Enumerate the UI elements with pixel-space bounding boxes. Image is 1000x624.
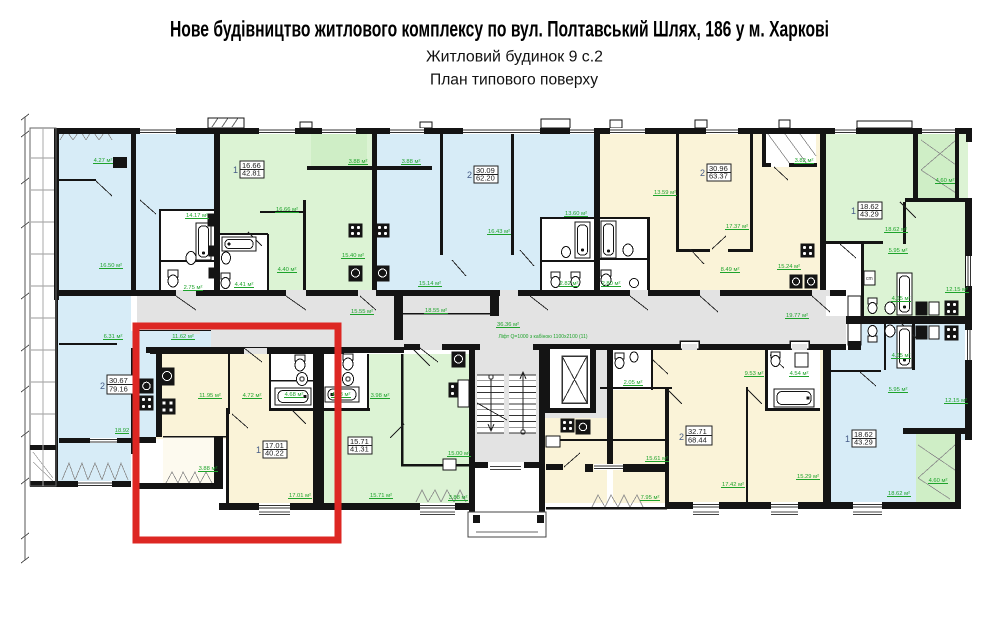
svg-text:1: 1 (233, 165, 238, 175)
svg-text:18.55 м²: 18.55 м² (425, 308, 447, 314)
svg-text:4.72 м²: 4.72 м² (243, 393, 262, 399)
svg-text:16.66 м²: 16.66 м² (276, 207, 298, 213)
svg-text:1: 1 (256, 445, 261, 455)
svg-text:2.75 м²: 2.75 м² (184, 285, 203, 291)
svg-text:40.22: 40.22 (265, 449, 284, 458)
svg-text:2.05 м²: 2.05 м² (624, 380, 643, 386)
svg-text:15.29 м²: 15.29 м² (797, 474, 819, 480)
svg-text:4.68 м²: 4.68 м² (285, 392, 304, 398)
svg-text:12.15 м²: 12.15 м² (946, 287, 968, 293)
svg-text:18.62 м²: 18.62 м² (885, 227, 907, 233)
svg-text:17.01 м²: 17.01 м² (289, 493, 311, 499)
svg-text:5.95 м²: 5.95 м² (889, 248, 908, 254)
svg-text:43.29: 43.29 (860, 210, 879, 219)
svg-text:4.60 м²: 4.60 м² (936, 178, 955, 184)
svg-text:15.14 м²: 15.14 м² (419, 281, 441, 287)
svg-text:3.88 м²: 3.88 м² (402, 159, 421, 165)
svg-text:16.43 м²: 16.43 м² (488, 229, 510, 235)
svg-text:62.20: 62.20 (476, 174, 495, 183)
svg-text:18.62 м²: 18.62 м² (888, 491, 910, 497)
svg-text:2.80 м²: 2.80 м² (602, 281, 621, 287)
svg-text:18.92: 18.92 (115, 428, 130, 434)
svg-text:15.55 м²: 15.55 м² (351, 309, 373, 315)
svg-text:12.15 м²: 12.15 м² (945, 398, 967, 404)
svg-text:15.71 м²: 15.71 м² (370, 493, 392, 499)
svg-text:3.88 м²: 3.88 м² (199, 466, 218, 472)
svg-text:15.61 м²: 15.61 м² (646, 456, 668, 462)
svg-text:36.36 м²: 36.36 м² (497, 322, 519, 328)
svg-text:13.59 м²: 13.59 м² (654, 190, 676, 196)
svg-text:2: 2 (100, 381, 105, 391)
svg-text:17.37 м²: 17.37 м² (726, 224, 748, 230)
svg-text:4.54 м²: 4.54 м² (790, 371, 809, 377)
svg-text:cm: cm (866, 276, 873, 282)
svg-text:8.49 м²: 8.49 м² (721, 267, 740, 273)
svg-text:63.37: 63.37 (709, 172, 728, 181)
svg-text:2: 2 (467, 170, 472, 180)
svg-text:13.60 м²: 13.60 м² (565, 211, 587, 217)
svg-text:11.95 м²: 11.95 м² (199, 393, 221, 399)
svg-text:42.81: 42.81 (242, 169, 261, 178)
svg-text:6.31 м²: 6.31 м² (104, 334, 123, 340)
svg-text:3.98 м²: 3.98 м² (371, 393, 390, 399)
svg-text:Житловий будинок 9 с.2: Житловий будинок 9 с.2 (426, 49, 603, 66)
svg-text:15.00 м²: 15.00 м² (448, 451, 470, 457)
svg-text:7.95 м²: 7.95 м² (641, 495, 660, 501)
svg-text:11.62 м²: 11.62 м² (172, 334, 194, 340)
svg-text:2: 2 (700, 168, 705, 178)
svg-text:2.82 м²: 2.82 м² (560, 281, 579, 287)
svg-text:4.65 м²: 4.65 м² (892, 353, 911, 359)
svg-text:1: 1 (851, 206, 856, 216)
svg-text:3.82 м²: 3.82 м² (795, 158, 814, 164)
svg-text:4.40 м²: 4.40 м² (278, 267, 297, 273)
svg-text:5.95 м²: 5.95 м² (889, 387, 908, 393)
svg-text:79.16: 79.16 (109, 385, 128, 394)
svg-text:Нове будівництво житлового ком: Нове будівництво житлового комплексу по … (170, 17, 829, 42)
svg-text:19.77 м²: 19.77 м² (786, 313, 808, 319)
svg-text:15.40 м²: 15.40 м² (342, 253, 364, 259)
svg-text:Ліфт Q=1000 з кабіною 1100x210: Ліфт Q=1000 з кабіною 1100x2100 (11) (498, 334, 587, 340)
svg-text:4.65 м²: 4.65 м² (892, 296, 911, 302)
svg-text:68.44: 68.44 (688, 436, 707, 445)
svg-text:План типового поверху: План типового поверху (430, 72, 598, 89)
svg-text:14.17 м²: 14.17 м² (186, 213, 208, 219)
svg-text:4.27 м²: 4.27 м² (94, 158, 113, 164)
svg-text:9.53 м²: 9.53 м² (745, 371, 764, 377)
svg-text:17.42 м²: 17.42 м² (722, 482, 744, 488)
svg-text:4.41 м²: 4.41 м² (235, 282, 254, 288)
svg-text:41.31: 41.31 (350, 445, 369, 454)
svg-text:2: 2 (679, 432, 684, 442)
svg-text:3.88 м²: 3.88 м² (349, 159, 368, 165)
svg-text:16.50 м²: 16.50 м² (100, 263, 122, 269)
svg-text:43.29: 43.29 (854, 438, 873, 447)
svg-text:3.88 м²: 3.88 м² (449, 495, 468, 501)
svg-text:4.60 м²: 4.60 м² (929, 478, 948, 484)
svg-text:15.24 м²: 15.24 м² (778, 264, 800, 270)
svg-text:1: 1 (845, 434, 850, 444)
